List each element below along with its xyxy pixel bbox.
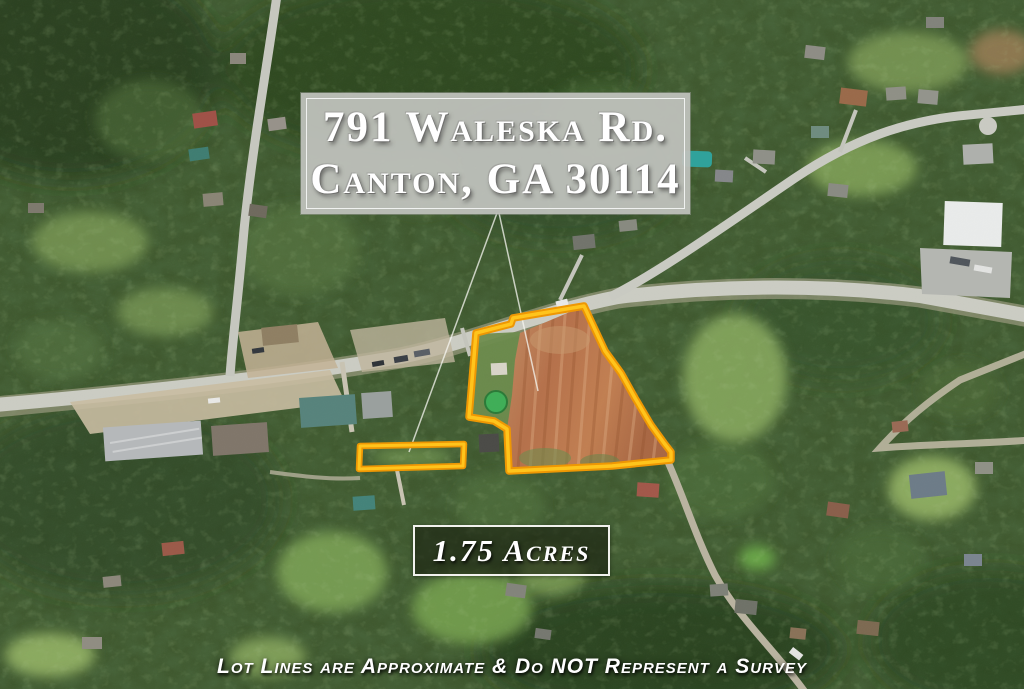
address-line-1: 791 Waleska Rd.: [323, 102, 668, 154]
acreage-value: 1.75 Acres: [433, 533, 591, 569]
disclaimer: Lot Lines are Approximate & Do NOT Repre…: [0, 655, 1024, 679]
disclaimer-text: Lot Lines are Approximate & Do NOT Repre…: [217, 655, 807, 678]
acreage-box: 1.75 Acres: [413, 525, 610, 576]
listing-photo-card: 791 Waleska Rd. Canton, GA 30114 1.75 Ac…: [0, 0, 1024, 689]
address-box: 791 Waleska Rd. Canton, GA 30114: [301, 93, 690, 214]
address-line-2: Canton, GA 30114: [310, 154, 680, 206]
